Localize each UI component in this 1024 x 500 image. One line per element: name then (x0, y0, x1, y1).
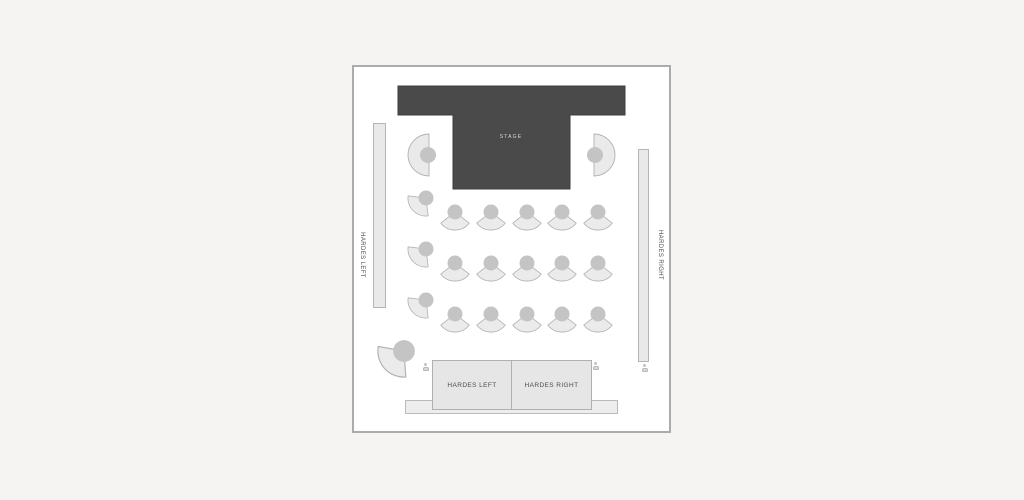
person-marker-body (642, 368, 648, 372)
chair-row1-seat2[interactable] (473, 204, 509, 234)
chair-seat-circle (520, 307, 535, 322)
person-marker-head (594, 362, 597, 365)
chair-row3-seat4[interactable] (544, 306, 580, 336)
chair-row3-seat1[interactable] (437, 306, 473, 336)
chair-row2-seat5[interactable] (580, 255, 616, 285)
chair-seat-circle (555, 307, 570, 322)
person-marker-icon (592, 362, 599, 370)
chair-seat-circle (448, 307, 463, 322)
chair-row3-seat2[interactable] (473, 306, 509, 336)
half-round-booth-left[interactable] (405, 133, 437, 177)
table-hardes-left-label: HARDES LEFT (447, 382, 496, 389)
chair-row1-seat3[interactable] (509, 204, 545, 234)
chair-seat-circle (520, 205, 535, 220)
chair-row1-seat1[interactable] (437, 204, 473, 234)
chair-row2-seat2[interactable] (473, 255, 509, 285)
chair-row2-seat3[interactable] (509, 255, 545, 285)
chair-seat-circle (448, 256, 463, 271)
floorplan-canvas[interactable]: STAGE HARDES LEFT HARDES RIGHT HARDES LE… (352, 65, 671, 433)
chair-seat-circle (591, 205, 606, 220)
chair-seat-circle (520, 256, 535, 271)
chair-seat-circle (484, 205, 499, 220)
chair-seat-circle (555, 205, 570, 220)
person-marker-head (424, 363, 427, 366)
half-round-booth-right[interactable] (586, 133, 618, 177)
chair-row2-seat4[interactable] (544, 255, 580, 285)
chair-row1-seat5[interactable] (580, 204, 616, 234)
table-hardes-left[interactable]: HARDES LEFT (432, 360, 512, 410)
chair-seat-circle (484, 256, 499, 271)
chair-row3-seat5[interactable] (580, 306, 616, 336)
chair-seat-circle (591, 256, 606, 271)
person-marker-icon (641, 364, 648, 372)
chair-row2-seat1[interactable] (437, 255, 473, 285)
chair-seat-circle (555, 256, 570, 271)
chair-seat-circle (591, 307, 606, 322)
chair-row3-seat3[interactable] (509, 306, 545, 336)
table-hardes-right[interactable]: HARDES RIGHT (512, 360, 592, 410)
chair-seat-circle (448, 205, 463, 220)
person-marker-body (423, 367, 429, 371)
person-marker-head (643, 364, 646, 367)
chair-seat-circle (484, 307, 499, 322)
table-hardes-right-label: HARDES RIGHT (525, 382, 579, 389)
chair-row1-seat4[interactable] (544, 204, 580, 234)
booth-seat-circle (420, 147, 436, 163)
person-marker-body (593, 366, 599, 370)
chair-corner[interactable] (363, 324, 430, 392)
person-marker-icon (422, 363, 429, 371)
booth-seat-circle (587, 147, 603, 163)
